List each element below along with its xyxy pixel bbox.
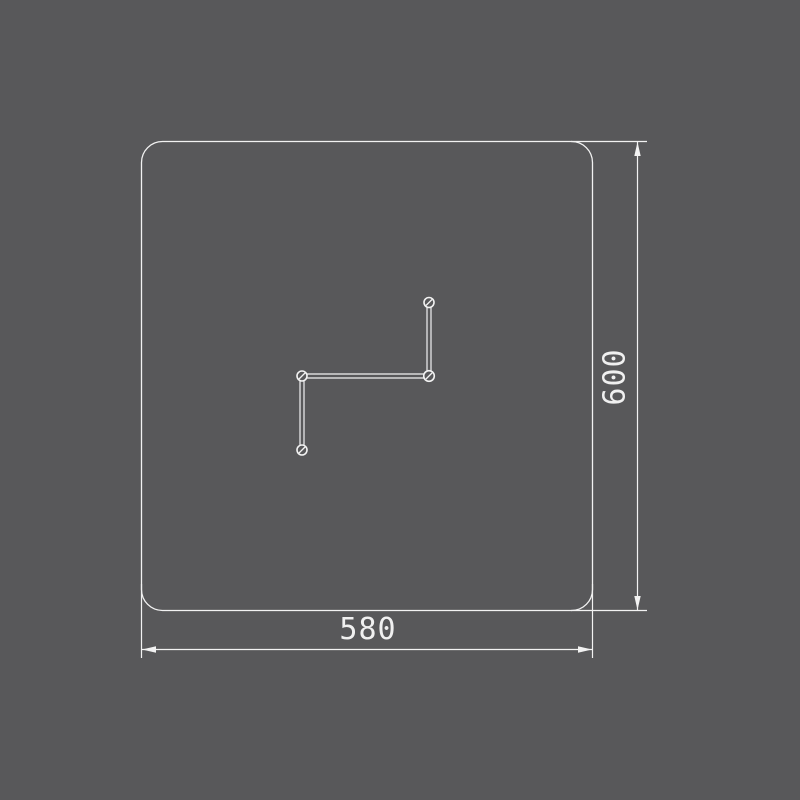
hole-center-tick-top [426,300,432,306]
arrowhead-height-top [634,142,640,156]
arrowhead-width-left [142,646,156,652]
hole-center-tick-junction [426,373,432,379]
dimension-height: 600 [571,142,647,611]
dimension-width-label: 580 [339,612,396,647]
hole-center-tick-left [299,373,305,379]
cad-drawing-canvas: 580 600 [0,0,800,800]
slot-cutout [297,298,434,456]
hole-center-tick-bottom [299,447,305,453]
arrowhead-width-right [578,646,592,652]
arrowhead-height-bottom [634,596,640,610]
panel-outline [142,142,593,611]
dimension-height-label: 600 [598,348,633,405]
dimension-width: 580 [142,584,593,658]
